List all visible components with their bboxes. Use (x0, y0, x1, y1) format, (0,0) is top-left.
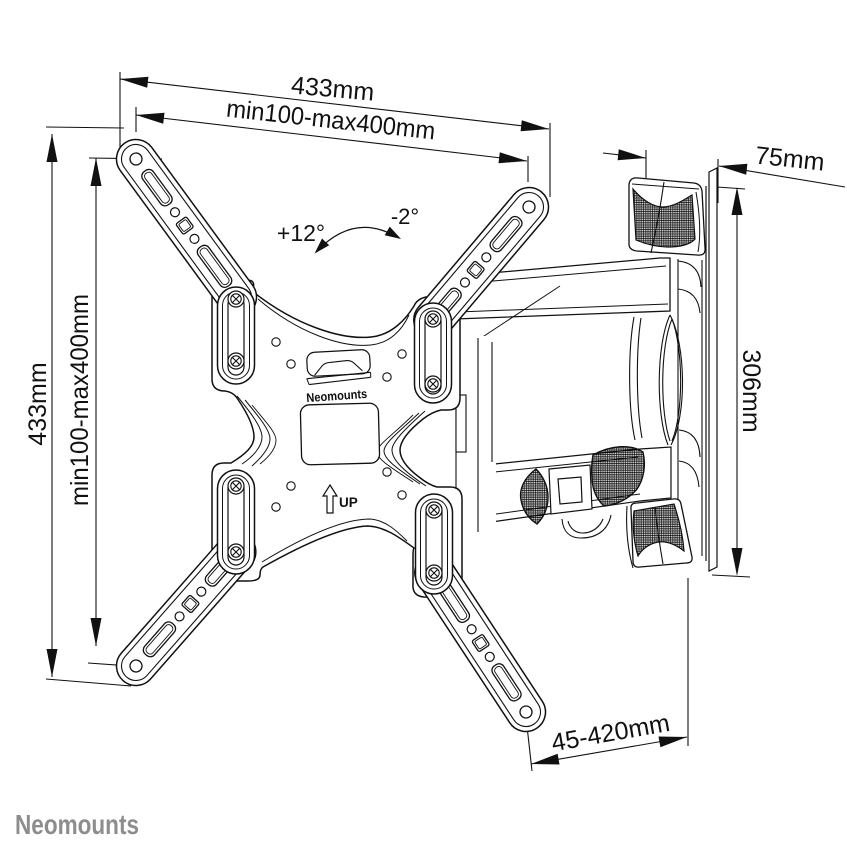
svg-text:UP: UP (339, 495, 358, 510)
svg-text:306mm: 306mm (737, 349, 765, 432)
svg-text:Neomounts: Neomounts (15, 809, 139, 840)
svg-text:+12°: +12° (277, 220, 325, 246)
svg-text:-2°: -2° (391, 204, 419, 229)
svg-text:433mm: 433mm (24, 362, 52, 445)
svg-text:min100-max400mm: min100-max400mm (66, 294, 94, 506)
